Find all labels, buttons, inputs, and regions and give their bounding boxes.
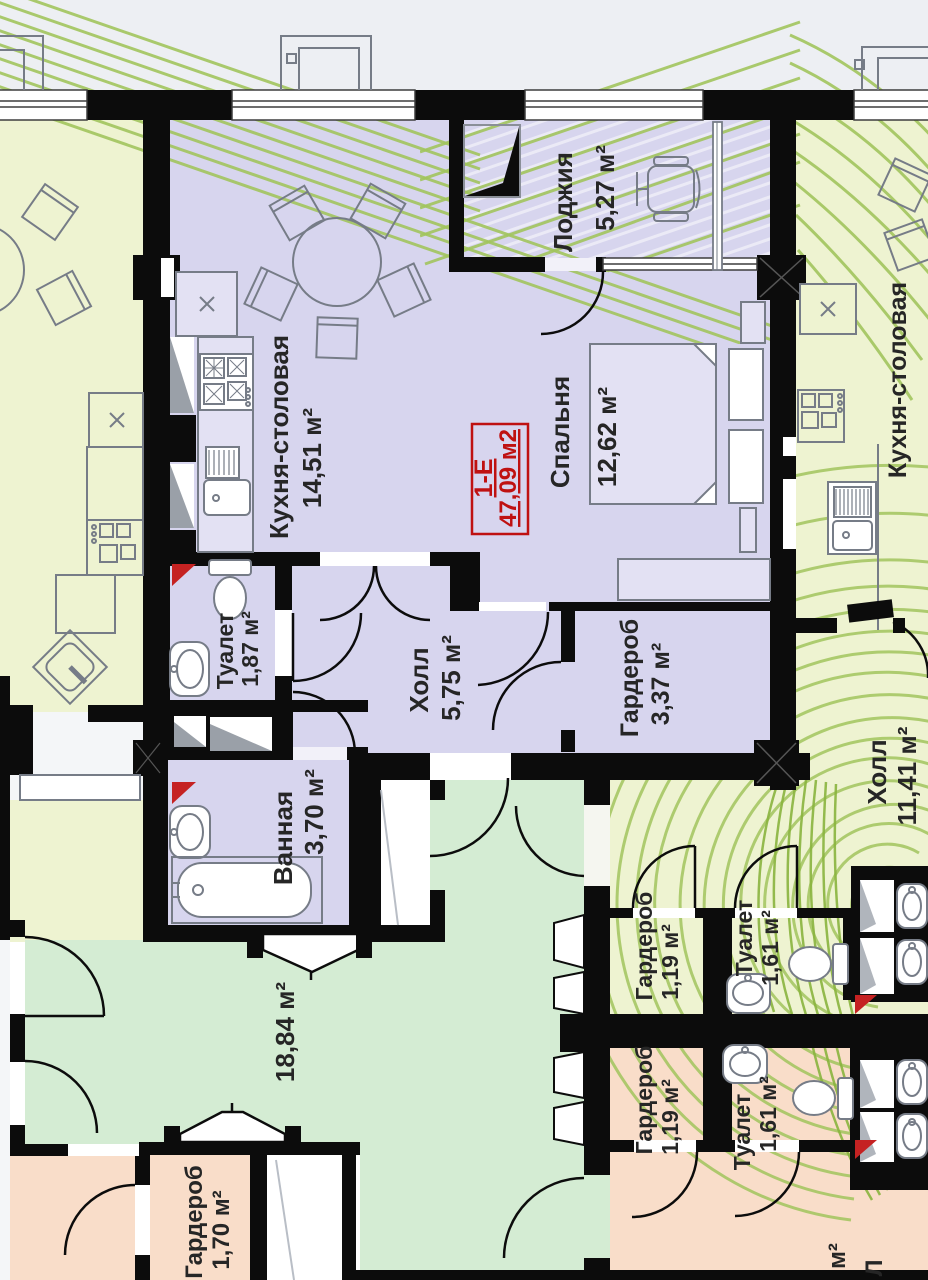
svg-text:1,19 м²: 1,19 м² [657,924,683,1000]
svg-text:Ванная: Ванная [268,791,298,885]
svg-text:Гардероб: Гардероб [631,1046,657,1155]
svg-text:3,37 м²: 3,37 м² [647,643,675,725]
svg-text:Туалет: Туалет [729,1094,755,1171]
svg-text:Л: Л [861,1260,888,1277]
svg-text:47,09 м2: 47,09 м2 [495,429,522,527]
svg-text:Холл: Холл [862,739,892,804]
svg-text:1,70 м²: 1,70 м² [208,1190,235,1269]
svg-text:5,27 м²: 5,27 м² [590,145,620,231]
svg-text:Лоджия: Лоджия [548,152,578,252]
svg-text:Холл: Холл [404,647,434,712]
svg-text:м²: м² [824,1243,851,1269]
svg-text:12,62 м²: 12,62 м² [592,387,622,488]
svg-text:1,87 м²: 1,87 м² [237,611,263,687]
svg-text:Гардероб: Гардероб [616,619,644,737]
svg-text:Спальня: Спальня [545,376,575,488]
svg-text:5,75 м²: 5,75 м² [436,635,466,721]
svg-text:14,51 м²: 14,51 м² [297,408,327,509]
svg-text:Кухня-столовая: Кухня-столовая [264,335,294,539]
svg-text:Туалет: Туалет [731,900,757,977]
svg-text:Кухня-столовая: Кухня-столовая [884,282,912,478]
svg-text:11,41 м²: 11,41 м² [892,726,922,825]
svg-text:Гардероб: Гардероб [631,892,657,1001]
svg-text:1-Е: 1-Е [470,459,498,498]
svg-text:1,61 м²: 1,61 м² [757,910,783,986]
svg-text:1,61 м²: 1,61 м² [755,1076,781,1152]
svg-text:3,70 м²: 3,70 м² [299,769,329,855]
svg-text:1,19 м²: 1,19 м² [657,1079,683,1155]
svg-text:Туалет: Туалет [212,613,238,690]
svg-text:18,84 м²: 18,84 м² [270,982,300,1083]
svg-text:Гардероб: Гардероб [181,1165,208,1278]
